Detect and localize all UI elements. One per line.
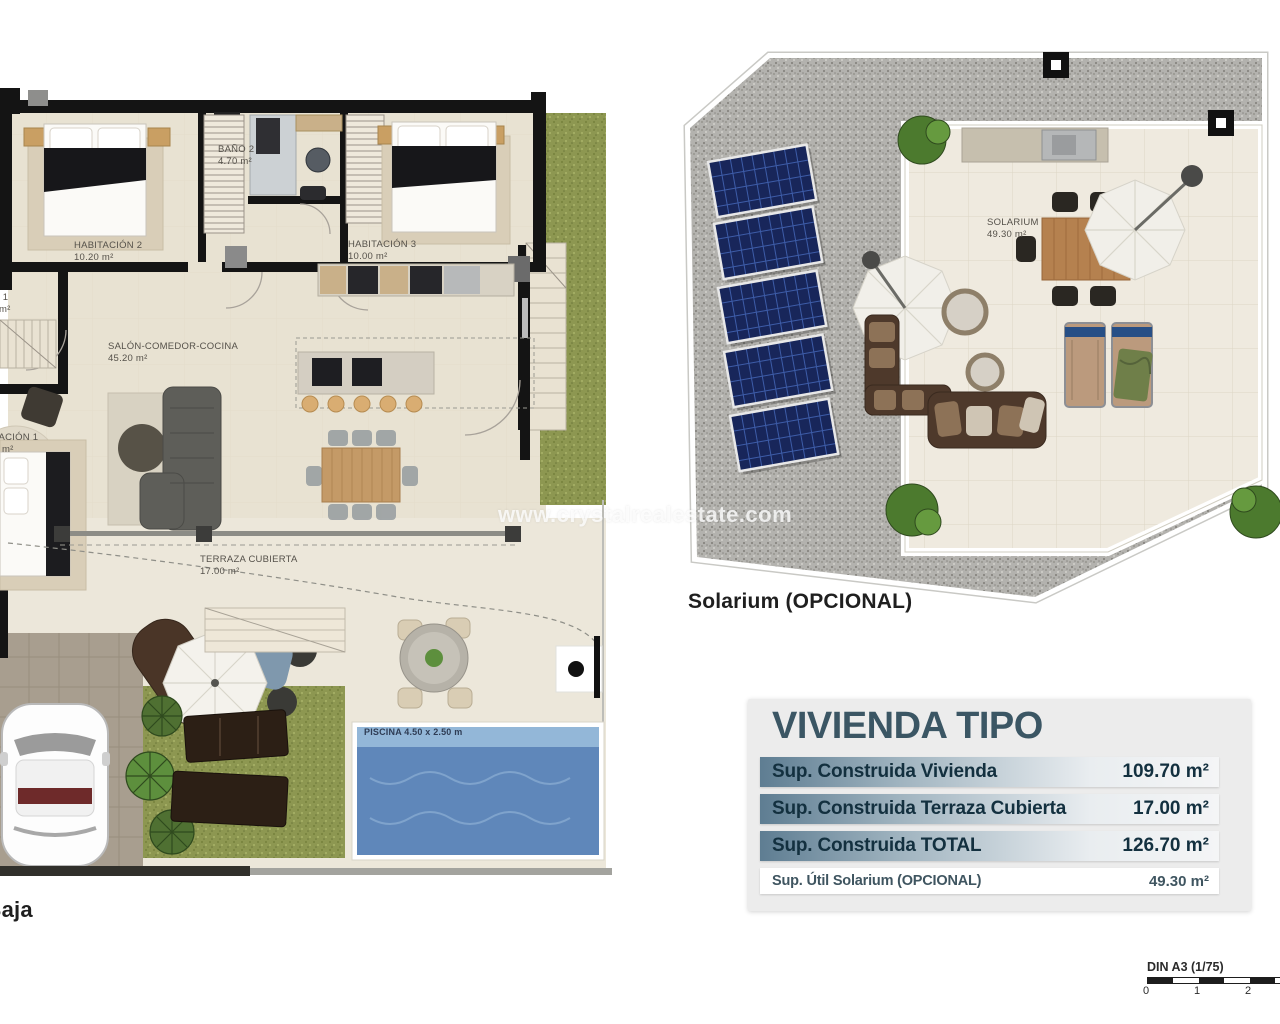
rattan-table	[968, 355, 1002, 389]
scale-tick: 1	[1194, 985, 1200, 997]
room-area: m²	[0, 304, 11, 316]
table-row-optional: Sup. Útil Solarium (OPCIONAL) 49.30 m²	[760, 868, 1219, 894]
bottom-wall-dark	[0, 866, 250, 876]
table-row: Sup. Construida Terraza Cubierta 17.00 m…	[760, 794, 1219, 824]
room-area: 49.30 m²	[987, 229, 1039, 241]
fridge	[410, 266, 442, 294]
row-label: Sup. Útil Solarium (OPCIONAL)	[772, 873, 981, 889]
oven	[348, 266, 378, 294]
room-name: HABITACIÓN 1	[0, 432, 38, 443]
room-area: 17.00 m²	[200, 566, 298, 578]
solarium-plan	[660, 40, 1280, 620]
room-area: m²	[2, 444, 38, 456]
scale-bar	[1147, 977, 1280, 984]
room-label-solarium: SOLARIUM 49.30 m²	[987, 217, 1039, 240]
window-strip	[522, 298, 528, 338]
pool-label: PISCINA 4.50 x 2.50 m	[364, 727, 462, 737]
kitchen-counter	[318, 264, 514, 296]
towel	[1113, 348, 1153, 402]
room-area: 10.00 m²	[348, 251, 416, 263]
pillar-block	[225, 246, 247, 268]
room-label-habitacion1: HABITACIÓN 1 m²	[0, 432, 38, 455]
room-name: BAÑO 1	[0, 292, 8, 303]
car-mirror	[0, 752, 8, 766]
room-name: SOLARIUM	[987, 217, 1039, 228]
bath-mat	[300, 186, 326, 200]
floor-caption-planta-baja: Planta Baja	[0, 897, 33, 923]
bathroom-counter	[296, 115, 342, 131]
rug-circle	[118, 424, 166, 472]
scale-label: DIN A3 (1/75)	[1147, 960, 1224, 974]
summary-table-title: VIVIENDA TIPO	[772, 705, 1043, 748]
table-plant	[425, 649, 443, 667]
row-label: Sup. Construida Vivienda	[772, 761, 997, 783]
scale-tick: 0	[1143, 985, 1149, 997]
interior-stairs	[0, 320, 56, 368]
bedroom3-furniture	[378, 122, 510, 244]
room-area: 45.20 m²	[108, 353, 238, 365]
sink-island	[352, 358, 382, 386]
scale-ticks: 0 1 2	[1143, 985, 1280, 999]
dining-table	[322, 448, 400, 502]
wall-block	[28, 90, 48, 106]
room-name: HABITACIÓN 2	[74, 240, 142, 251]
garage-steps	[205, 608, 345, 652]
row-label: Sup. Construida Terraza Cubierta	[772, 798, 1066, 820]
room-label-bano2: BAÑO 2 4.70 m²	[218, 144, 254, 167]
room-name: HABITACIÓN 3	[348, 239, 416, 250]
ground-floor-plan	[0, 88, 612, 878]
pool	[352, 722, 604, 860]
sofa-chaise	[140, 473, 184, 529]
bottom-wall-gray	[250, 868, 612, 875]
row-label: Sup. Construida TOTAL	[772, 835, 981, 857]
terrace-beam	[60, 531, 515, 536]
bedroom2-furniture	[24, 124, 170, 250]
car-seats	[18, 788, 92, 804]
row-value: 109.70 m²	[1122, 761, 1209, 783]
room-label-terraza: TERRAZA CUBIERTA 17.00 m²	[200, 554, 298, 577]
room-label-habitacion3: HABITACIÓN 3 10.00 m²	[348, 239, 416, 262]
car-top-view	[0, 704, 110, 866]
room-name: TERRAZA CUBIERTA	[200, 554, 298, 565]
room-label-bano1: BAÑO 1 m²	[0, 292, 11, 315]
row-value: 49.30 m²	[1149, 873, 1209, 890]
ground-floor-plan-drawing	[0, 88, 612, 878]
room-area: 4.70 m²	[218, 156, 254, 168]
solarium-plan-drawing	[660, 40, 1280, 620]
wardrobe-corridor	[204, 115, 244, 233]
room-label-habitacion2: HABITACIÓN 2 10.20 m²	[74, 240, 142, 263]
table-row: Sup. Construida TOTAL 126.70 m²	[760, 831, 1219, 861]
summary-table-panel: VIVIENDA TIPO Sup. Construida Vivienda 1…	[748, 699, 1251, 911]
solarium-sofa	[928, 392, 1046, 448]
lounger	[1065, 323, 1105, 407]
row-value: 17.00 m²	[1133, 798, 1209, 820]
solarium-counter	[962, 128, 1108, 162]
room-name: SALÓN-COMEDOR-COCINA	[108, 341, 238, 352]
floorplan-sheet: { "watermark": "www.crystalrealestate.co…	[0, 0, 1280, 1024]
cooktop	[312, 358, 342, 386]
room-area: 10.20 m²	[74, 252, 142, 264]
car-mirror	[102, 752, 110, 766]
scale-tick: 2	[1245, 985, 1251, 997]
lounger	[1112, 323, 1153, 407]
living-room-furniture	[108, 387, 221, 530]
solarium-caption: Solarium (OPCIONAL)	[688, 590, 912, 614]
dishwasher	[444, 266, 480, 294]
round-sink	[306, 148, 330, 172]
room-label-salon: SALÓN-COMEDOR-COCINA 45.20 m²	[108, 341, 238, 364]
summary-table-rows: Sup. Construida Vivienda 109.70 m² Sup. …	[760, 757, 1219, 901]
room-name: BAÑO 2	[218, 144, 254, 155]
row-value: 126.70 m²	[1122, 835, 1209, 857]
watermark: www.crystalrealestate.com	[498, 502, 792, 528]
rattan-table	[944, 291, 986, 333]
table-row: Sup. Construida Vivienda 109.70 m²	[760, 757, 1219, 787]
